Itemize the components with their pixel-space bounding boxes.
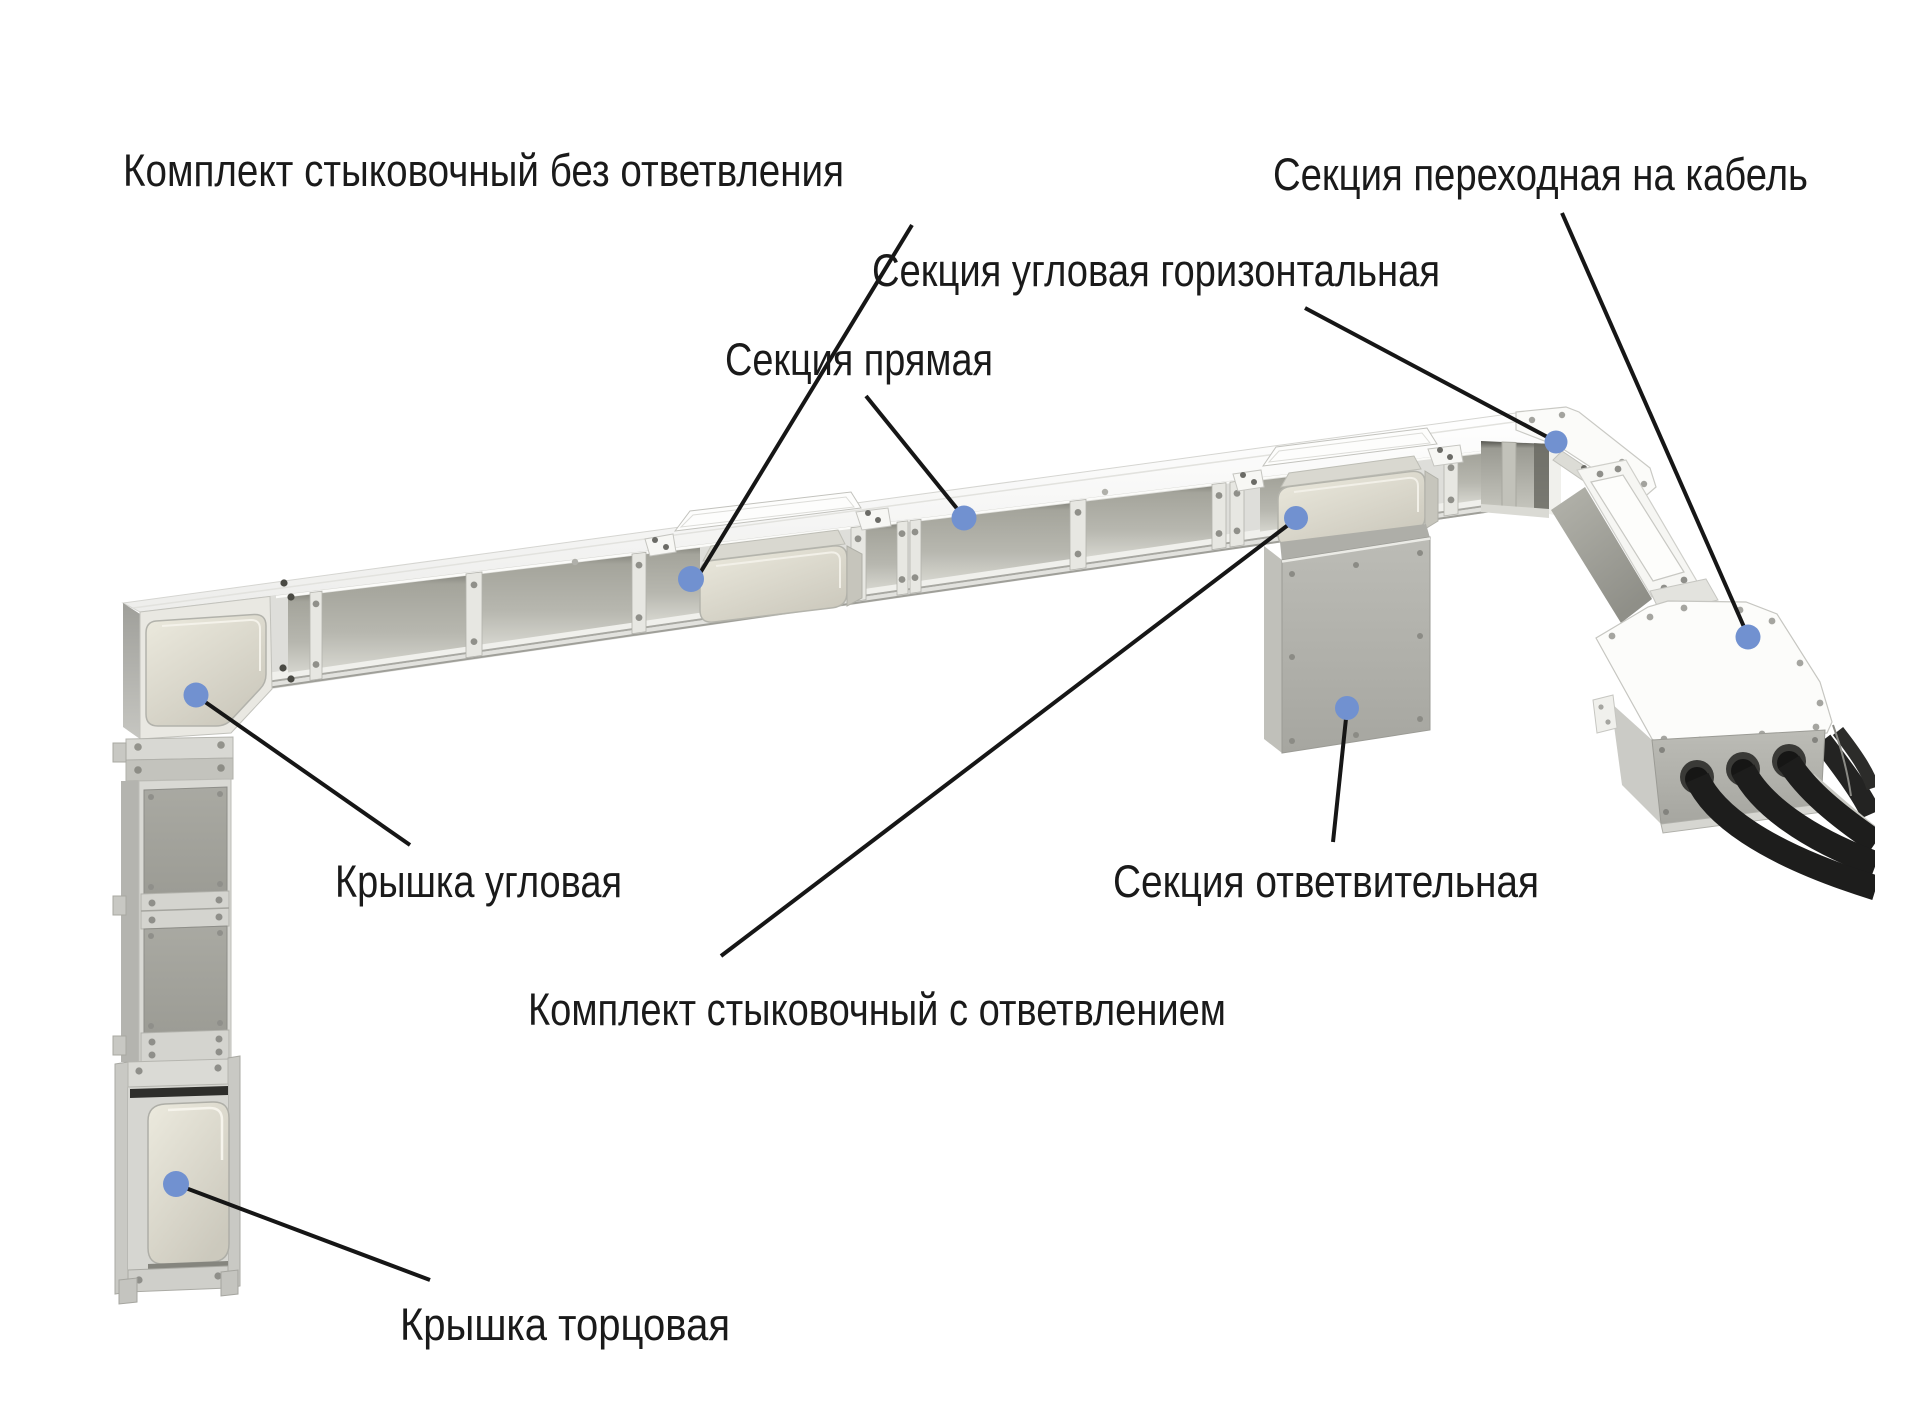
- svg-text:Крышка торцовая: Крышка торцовая: [400, 1299, 730, 1350]
- svg-text:Крышка угловая: Крышка угловая: [335, 856, 622, 907]
- svg-text:Комплект стыковочный с ответвл: Комплект стыковочный с ответвлением: [528, 984, 1226, 1035]
- svg-text:Комплект стыковочный без ответ: Комплект стыковочный без ответвления: [123, 145, 844, 196]
- svg-text:Секция прямая: Секция прямая: [725, 334, 993, 385]
- svg-text:Секция ответвительная: Секция ответвительная: [1113, 856, 1539, 907]
- svg-text:Секция угловая горизонтальная: Секция угловая горизонтальная: [872, 245, 1440, 296]
- svg-text:Секция переходная на кабель: Секция переходная на кабель: [1273, 149, 1808, 200]
